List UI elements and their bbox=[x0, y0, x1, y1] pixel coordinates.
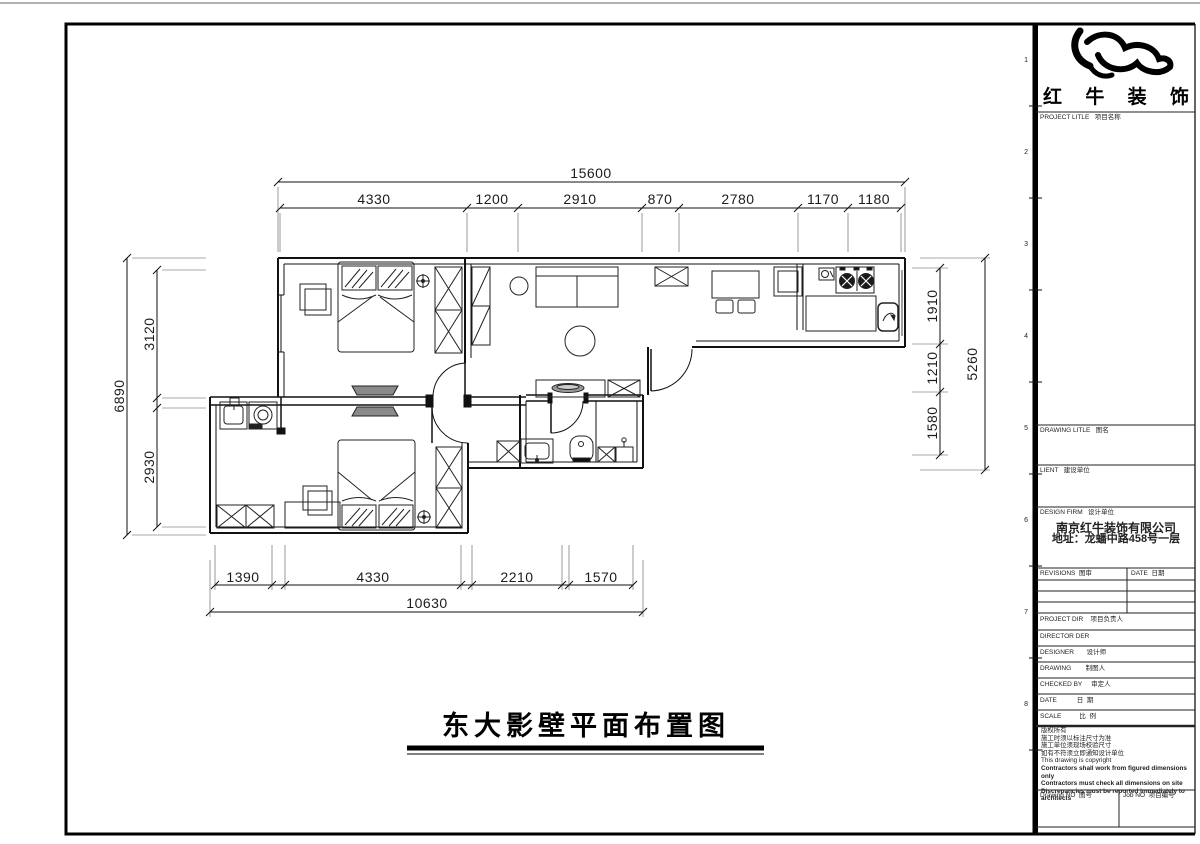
ruler-number: 8 bbox=[1016, 701, 1028, 708]
logo-char: 红 bbox=[1043, 82, 1062, 109]
title-underline bbox=[407, 748, 764, 754]
bed-bedroom-g bbox=[338, 440, 415, 530]
cabinet-x-dining bbox=[655, 267, 688, 286]
dim-left-2: 2930 bbox=[141, 450, 157, 483]
drawing-no-label: Drawing NO 图号 bbox=[1040, 792, 1092, 800]
company-logo-text: 红 牛 装 饰 bbox=[1040, 82, 1192, 109]
note-line: Contractors shall work from figured dime… bbox=[1041, 765, 1191, 780]
door-entrance bbox=[651, 349, 692, 391]
ruler-number: 4 bbox=[1016, 333, 1028, 340]
dim-top-6: 1170 bbox=[807, 191, 839, 207]
drawing-title-label: DRAWING LITLE 图名 bbox=[1040, 427, 1109, 435]
stool bbox=[510, 277, 528, 295]
designer-label: DESIGNER 设计师 bbox=[1040, 649, 1106, 657]
project-dir-label: PROJECT DIR 项目负责人 bbox=[1040, 616, 1123, 624]
dim-bottom-4: 1570 bbox=[584, 569, 617, 585]
cabinet-x-vestibule bbox=[497, 441, 520, 462]
wardrobe-bedroom-g-right bbox=[436, 447, 462, 528]
mop-basin bbox=[598, 438, 633, 462]
dim-right-1: 1910 bbox=[924, 289, 940, 322]
logo-char: 装 bbox=[1128, 82, 1147, 109]
ceiling-lamp-icon-2 bbox=[417, 510, 431, 524]
ruler-number: 3 bbox=[1016, 241, 1028, 248]
ruler-number: 5 bbox=[1016, 425, 1028, 432]
wardrobe-bedroom-g-left bbox=[217, 505, 274, 528]
dim-bottom-1: 1390 bbox=[226, 569, 259, 585]
ruler-number: 2 bbox=[1016, 149, 1028, 156]
fridge bbox=[774, 267, 802, 296]
washing-machine bbox=[249, 402, 277, 429]
toilet bbox=[570, 436, 593, 462]
furniture bbox=[217, 262, 898, 530]
firm-address: 地址：龙蟠中路458号一层 bbox=[1046, 533, 1186, 546]
radiator-icon bbox=[352, 386, 398, 416]
dim-top-total: 15600 bbox=[570, 165, 611, 181]
dim-top-1: 4330 bbox=[357, 191, 390, 207]
dim-bottom-3: 2210 bbox=[500, 569, 533, 585]
revisions-label: REVISIONS 图审 bbox=[1040, 570, 1092, 578]
dim-top-4: 870 bbox=[648, 191, 673, 207]
ruler-number: 7 bbox=[1016, 609, 1028, 616]
kitchen-counter bbox=[806, 296, 876, 331]
note-line: 施工单位须现场校验尺寸 bbox=[1041, 742, 1191, 750]
drawing-sheet: { "title": "东大影壁平面布置图", "dims": { "top_t… bbox=[0, 0, 1200, 844]
wardrobe-bedroom-a bbox=[435, 267, 462, 353]
note-line: 版权所有 bbox=[1041, 727, 1191, 735]
ruler-number: 6 bbox=[1016, 517, 1028, 524]
ruler-number: 1 bbox=[1016, 57, 1028, 64]
note-line: 如有不符须立即通知设计单位 bbox=[1041, 750, 1191, 758]
logo-char: 饰 bbox=[1170, 82, 1189, 109]
kitchen-sink-icon bbox=[819, 268, 834, 280]
drawing-by-label: DRAWING 制图人 bbox=[1040, 665, 1105, 673]
job-no-label: Job NO 项目编号 bbox=[1123, 792, 1175, 800]
dining-table bbox=[712, 271, 759, 313]
dim-top-5: 2780 bbox=[721, 191, 754, 207]
door-bathroom bbox=[551, 401, 583, 433]
design-firm-label: DESIGN FIRM 设计单位 bbox=[1040, 509, 1114, 517]
round-table bbox=[565, 326, 595, 356]
dim-top-7: 1180 bbox=[858, 191, 890, 207]
project-title-label: PROJECT LITLE 项目名称 bbox=[1040, 114, 1121, 122]
dim-left-total: 6890 bbox=[111, 379, 127, 412]
utility-sink bbox=[220, 398, 247, 429]
client-label: LIENT 建设单位 bbox=[1040, 467, 1090, 475]
dim-bottom-total: 10630 bbox=[406, 595, 447, 611]
dim-top-3: 2910 bbox=[563, 191, 596, 207]
bed-bedroom-a bbox=[338, 262, 414, 352]
note-line: Contractors must check all dimensions on… bbox=[1041, 780, 1191, 788]
ceiling-lamp-icon bbox=[416, 274, 430, 288]
dim-right-3: 1580 bbox=[924, 406, 940, 439]
gas-stove bbox=[836, 267, 874, 293]
rednow-bull-logo-icon bbox=[1075, 31, 1171, 76]
date-label: DATE 日 期 bbox=[1040, 697, 1093, 705]
tall-cabinet-living bbox=[472, 267, 490, 345]
director-label: DIRECTOR DER bbox=[1040, 633, 1089, 641]
nightstand-bedroom-g bbox=[303, 486, 332, 515]
note-line: This drawing is copyright bbox=[1041, 757, 1191, 765]
door-bedroom-g bbox=[432, 407, 468, 443]
checked-by-label: CHECKED BY 审定人 bbox=[1040, 681, 1111, 689]
scale-label: SCALE 比 例 bbox=[1040, 713, 1096, 721]
dim-top-2: 1200 bbox=[475, 191, 508, 207]
nightstand-bedroom-a bbox=[300, 284, 331, 315]
dim-right-2: 1210 bbox=[924, 351, 940, 384]
door-bedroom-a bbox=[433, 363, 465, 397]
dim-bottom-2: 4330 bbox=[356, 569, 389, 585]
dim-left-1: 3120 bbox=[141, 317, 157, 350]
walls bbox=[210, 258, 905, 533]
revisions-date-label: DATE 日期 bbox=[1131, 570, 1164, 578]
logo-char: 牛 bbox=[1085, 82, 1104, 109]
dim-right-total: 5260 bbox=[964, 347, 980, 380]
page-title: 东大影壁平面布置图 bbox=[442, 704, 730, 743]
sofa bbox=[536, 267, 618, 307]
water-heater bbox=[878, 303, 898, 331]
